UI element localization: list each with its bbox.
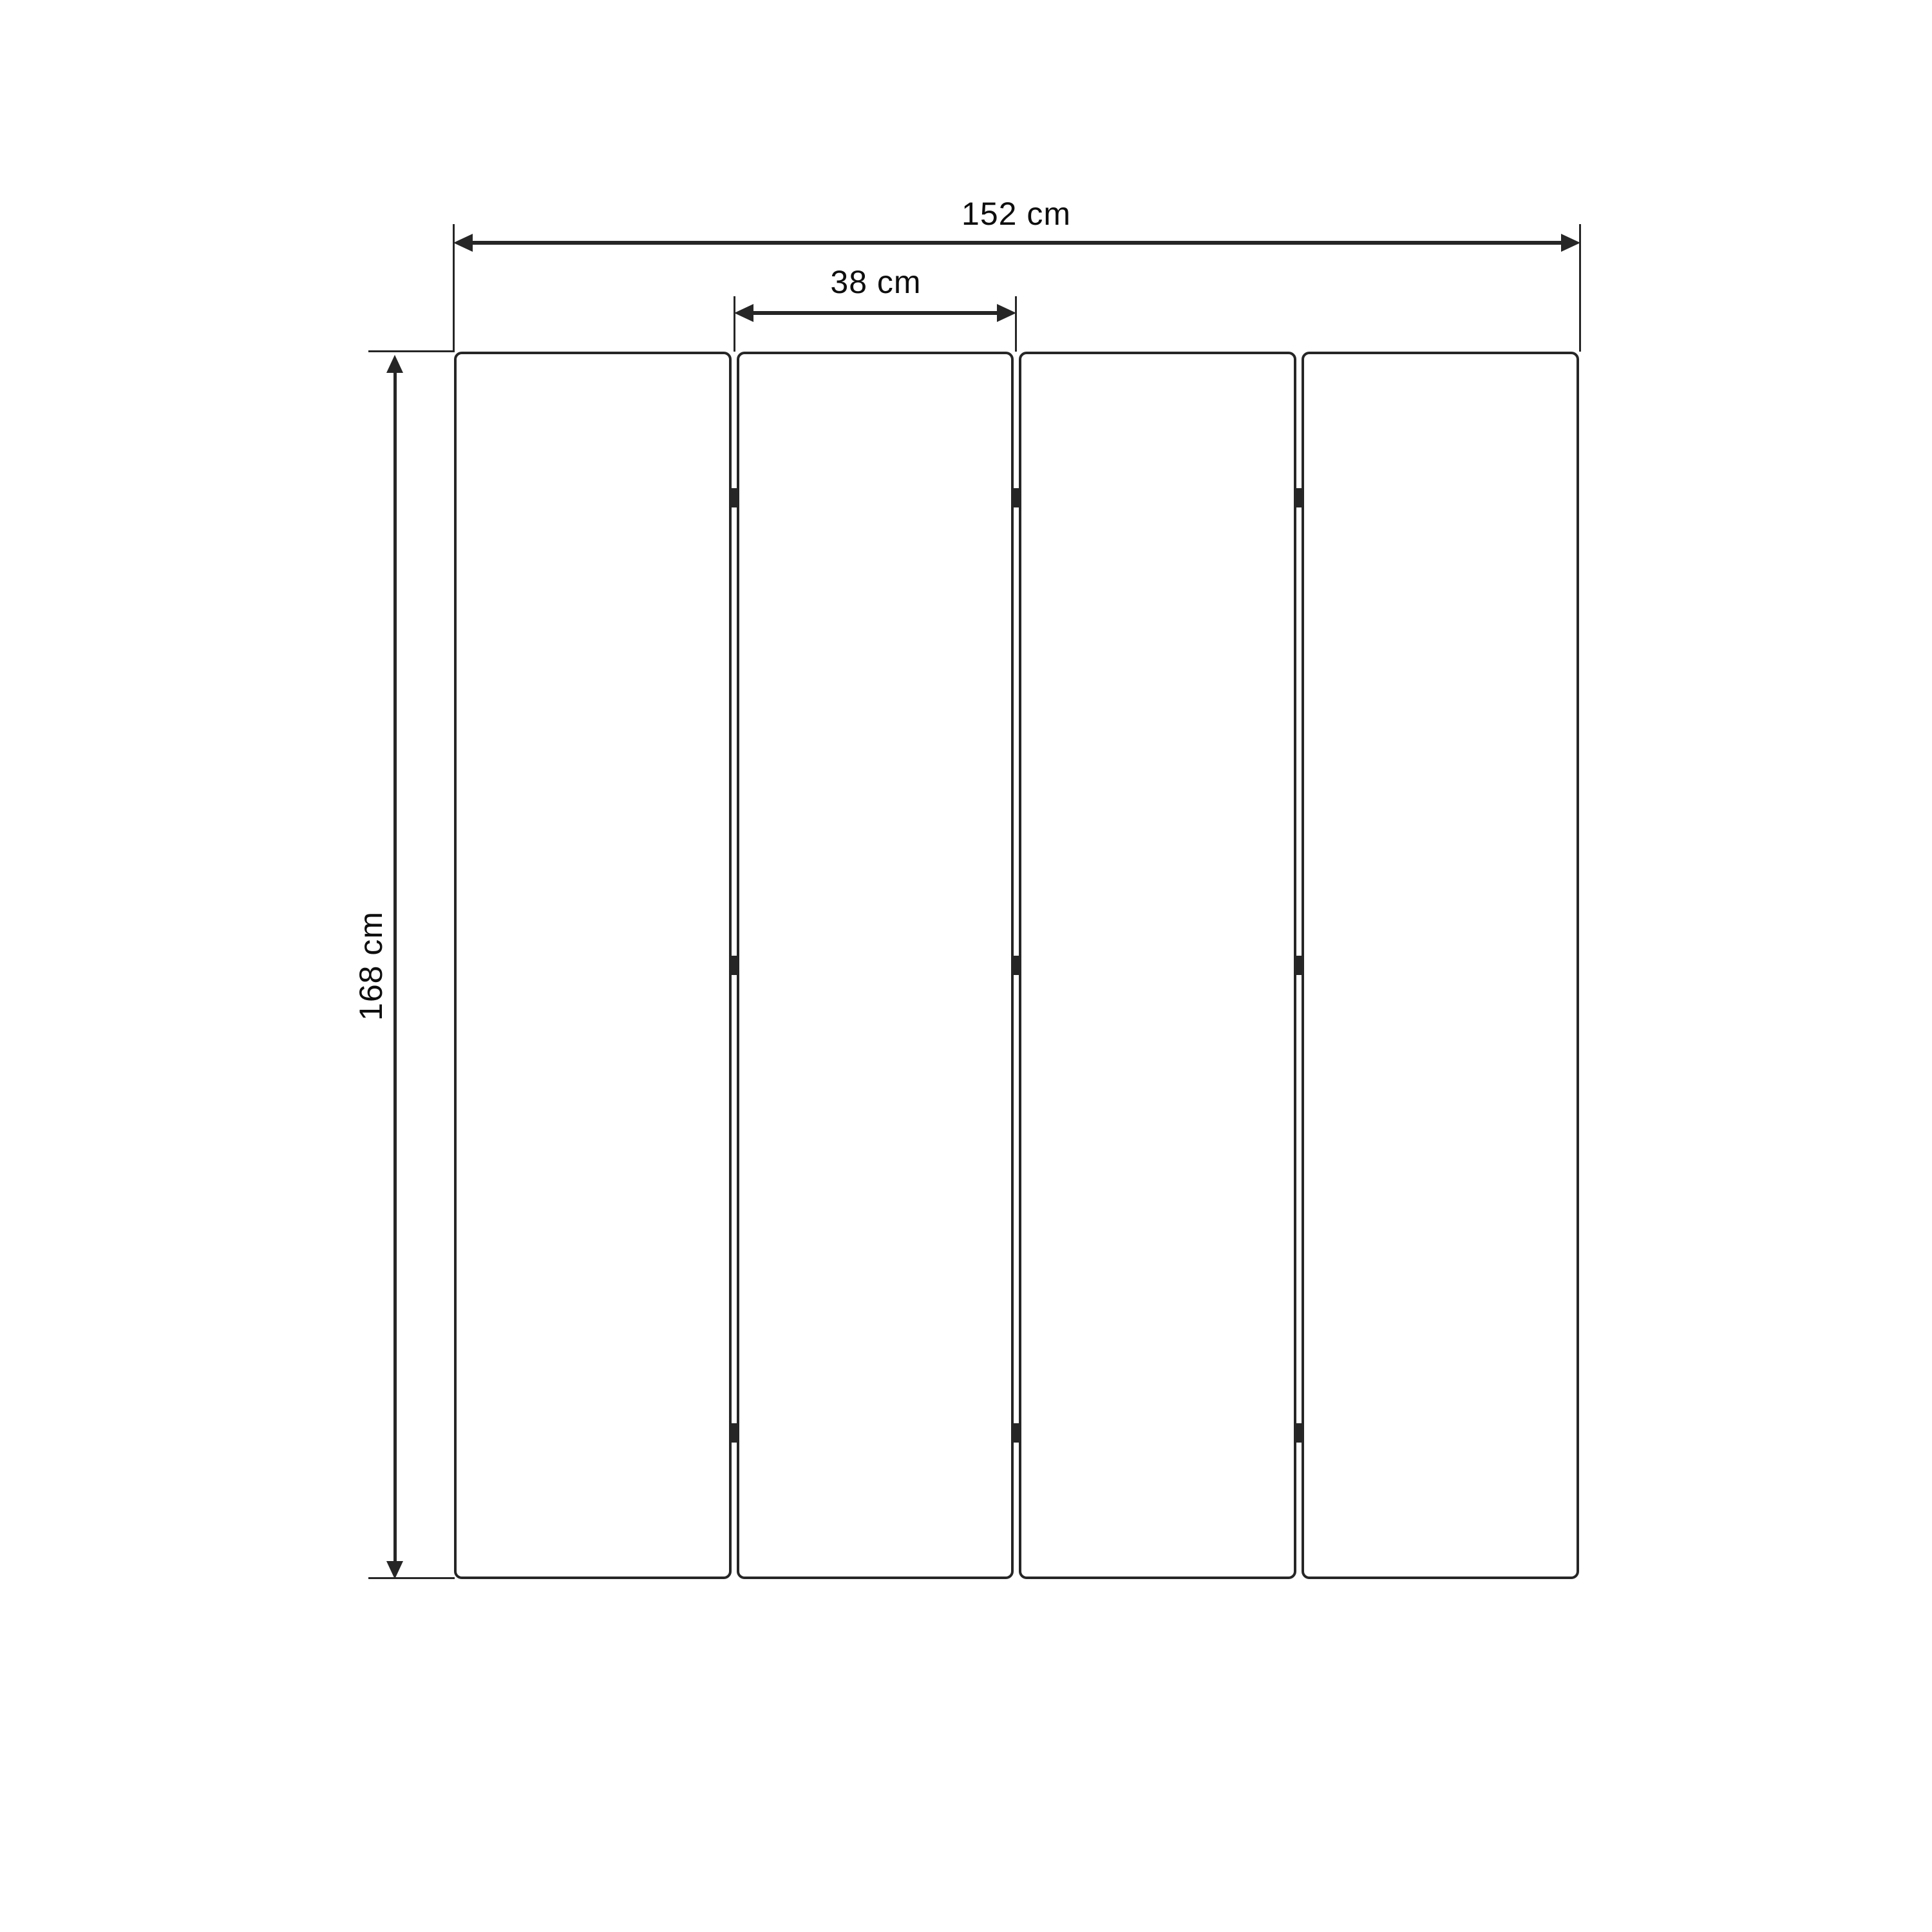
hinge bbox=[730, 956, 739, 975]
extension-line bbox=[1579, 224, 1581, 352]
dimension-line-shaft bbox=[750, 311, 1001, 315]
arrowhead-right-icon bbox=[997, 304, 1016, 322]
hinge bbox=[1012, 956, 1021, 975]
arrowhead-down-icon bbox=[386, 1561, 403, 1579]
panel-1 bbox=[454, 352, 732, 1579]
panel-width-dimension-line bbox=[734, 302, 1016, 324]
panel-width-dimension-label: 38 cm bbox=[830, 263, 921, 301]
dimension-line-shaft bbox=[469, 241, 1565, 245]
total-width-dimension-label: 152 cm bbox=[961, 195, 1071, 232]
extension-line bbox=[368, 1577, 455, 1579]
hinge bbox=[1294, 956, 1303, 975]
dimension-line-shaft bbox=[393, 369, 397, 1565]
total-width-dimension-line bbox=[453, 232, 1580, 254]
panel-4 bbox=[1302, 352, 1579, 1579]
arrowhead-right-icon bbox=[1561, 234, 1580, 252]
panel-3 bbox=[1019, 352, 1296, 1579]
height-dimension-line bbox=[384, 355, 406, 1579]
hinge bbox=[730, 488, 739, 507]
hinge bbox=[730, 1423, 739, 1443]
hinge bbox=[1012, 488, 1021, 507]
extension-line bbox=[734, 296, 735, 352]
dimension-diagram-canvas: 152 cm 38 cm 168 cm bbox=[0, 0, 1932, 1932]
extension-line bbox=[368, 350, 455, 352]
hinge bbox=[1294, 1423, 1303, 1443]
extension-line bbox=[453, 224, 455, 352]
hinge bbox=[1012, 1423, 1021, 1443]
hinge bbox=[1294, 488, 1303, 507]
extension-line bbox=[1015, 296, 1017, 352]
panel-2 bbox=[737, 352, 1014, 1579]
